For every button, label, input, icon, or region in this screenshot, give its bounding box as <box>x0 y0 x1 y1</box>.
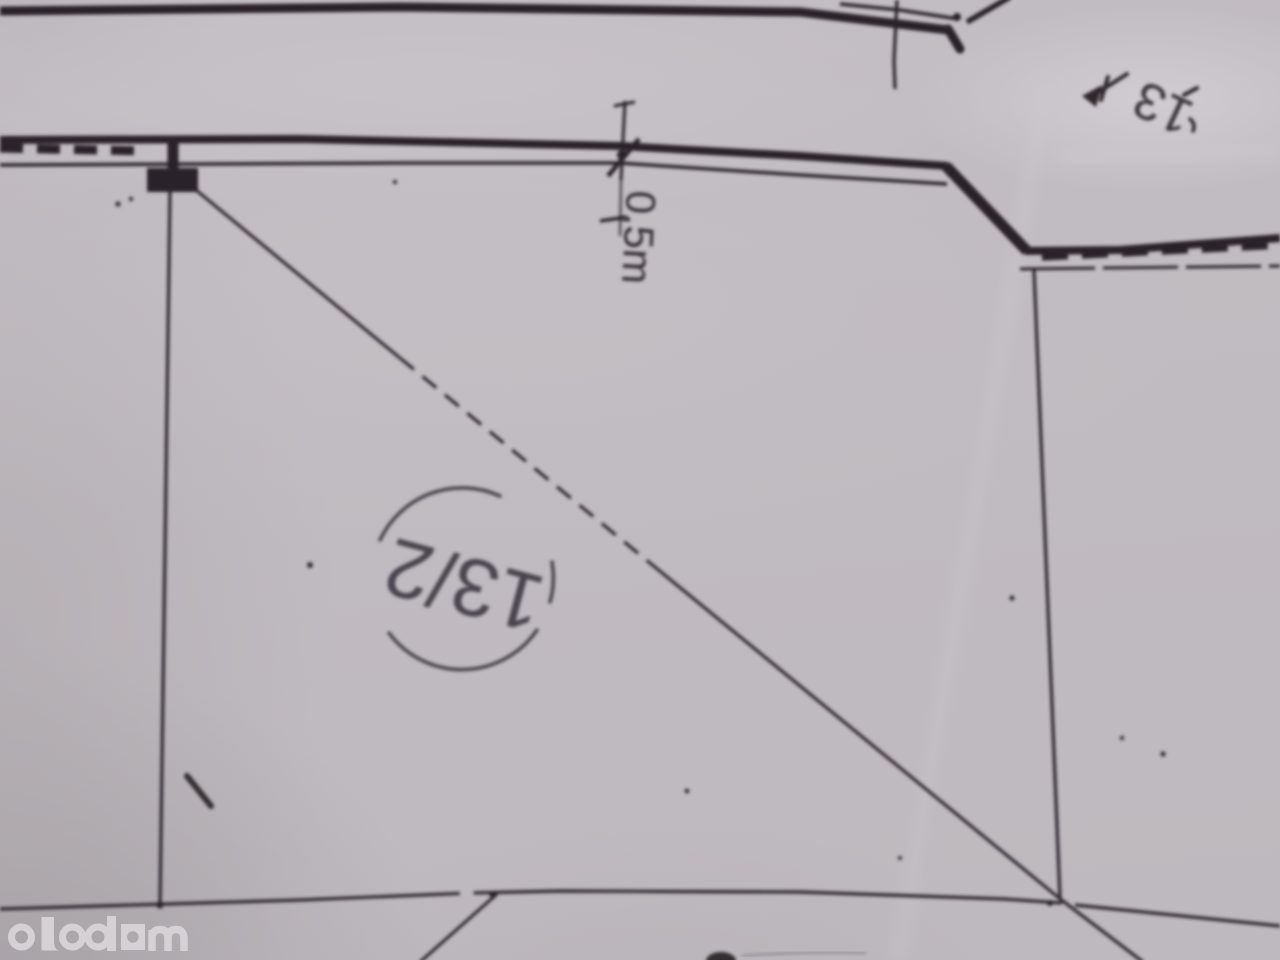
svg-text:0,5m: 0,5m <box>613 190 665 286</box>
svg-text:13: 13 <box>1125 69 1202 146</box>
svg-text:13/2: 13/2 <box>375 520 553 649</box>
